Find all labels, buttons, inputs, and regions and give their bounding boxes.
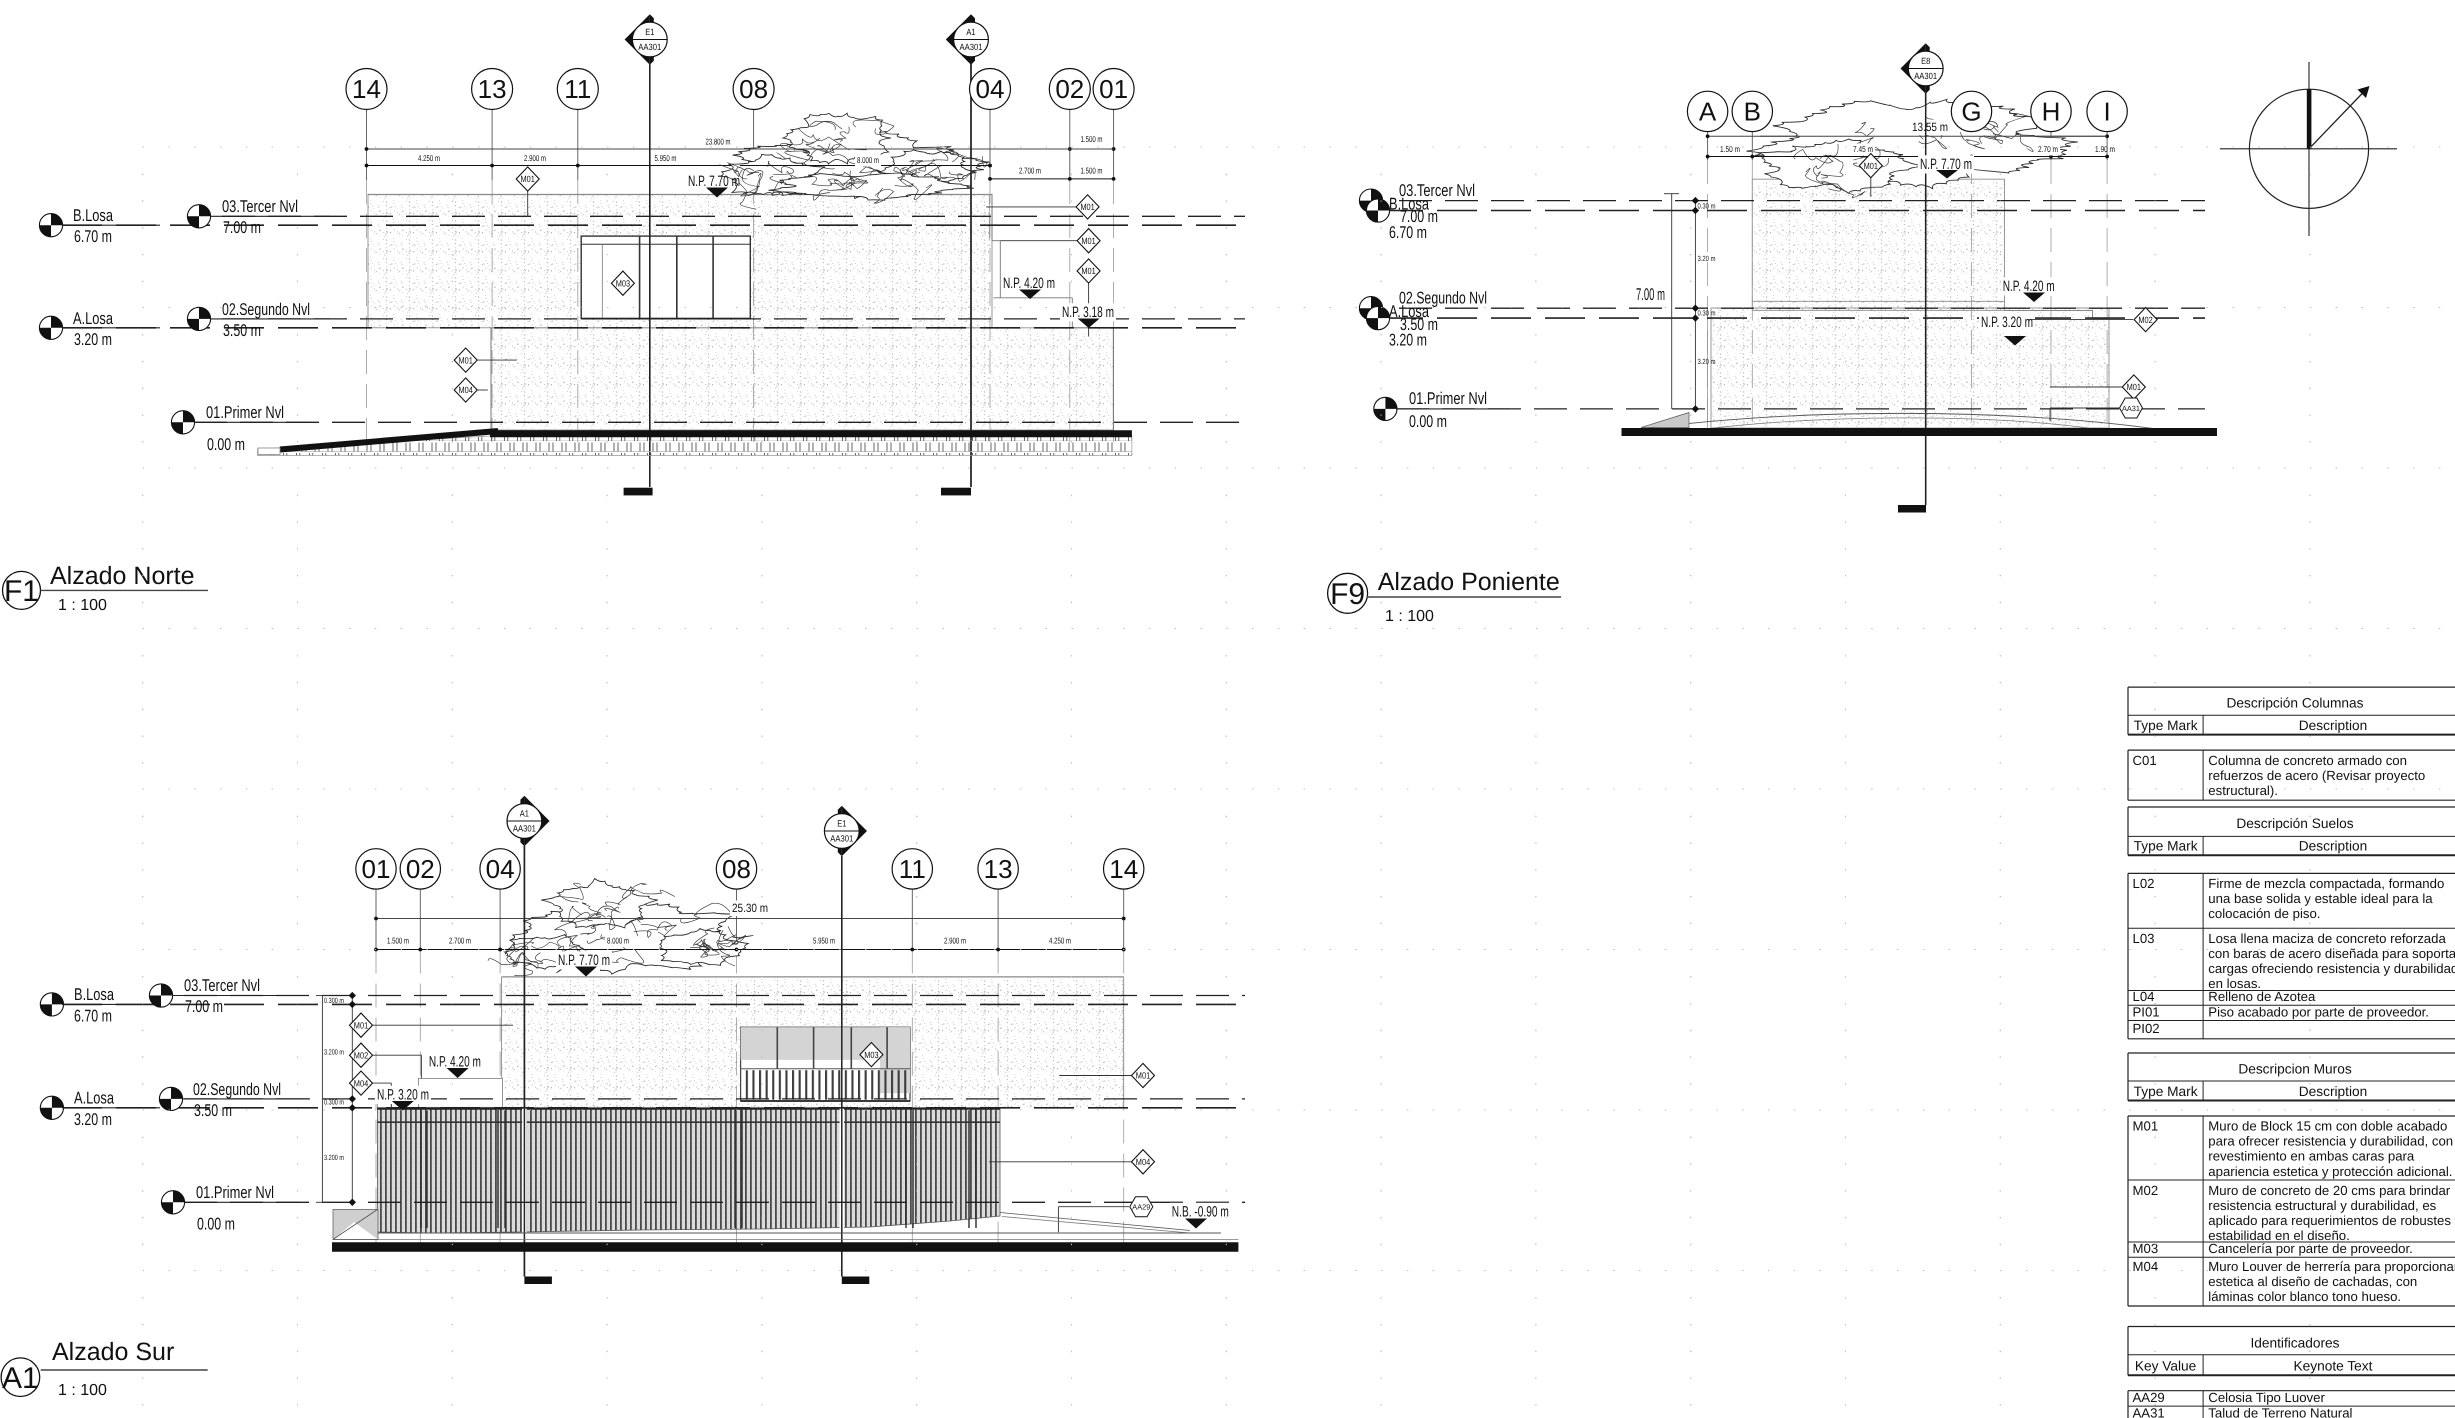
svg-text:M04: M04 xyxy=(2133,1259,2159,1274)
svg-text:1.90 m: 1.90 m xyxy=(2095,144,2115,154)
svg-text:2.70 m: 2.70 m xyxy=(2038,144,2058,154)
svg-text:M01: M01 xyxy=(1081,266,1095,276)
svg-text:02: 02 xyxy=(406,854,435,884)
svg-text:3.20 m: 3.20 m xyxy=(1698,357,1716,366)
svg-text:N.P. 4.20 m: N.P. 4.20 m xyxy=(429,1054,481,1071)
svg-text:0.300 m: 0.300 m xyxy=(324,1098,344,1107)
svg-text:7.00 m: 7.00 m xyxy=(185,997,223,1016)
svg-text:AA29: AA29 xyxy=(1132,1203,1150,1212)
svg-text:estructural).: estructural). xyxy=(2208,783,2278,798)
svg-text:colocación de piso.: colocación de piso. xyxy=(2208,906,2320,921)
svg-text:Type Mark: Type Mark xyxy=(2134,839,2198,854)
svg-text:Alzado Poniente: Alzado Poniente xyxy=(1378,568,1560,596)
svg-text:01.Primer Nvl: 01.Primer Nvl xyxy=(196,1183,274,1202)
svg-text:N.B. -0.90 m: N.B. -0.90 m xyxy=(1172,1204,1229,1221)
svg-text:Firme de mezcla compactada, fo: Firme de mezcla compactada, formando xyxy=(2208,876,2444,891)
svg-text:Description: Description xyxy=(2299,839,2367,854)
svg-text:Losa llena maciza de concreto: Losa llena maciza de concreto reforzada xyxy=(2208,931,2446,946)
svg-text:AA301: AA301 xyxy=(513,824,536,834)
svg-text:03.Tercer Nvl: 03.Tercer Nvl xyxy=(222,197,298,216)
svg-text:M01: M01 xyxy=(1080,202,1094,212)
svg-text:A1: A1 xyxy=(520,809,529,819)
svg-text:N.P. 3.18 m: N.P. 3.18 m xyxy=(1062,304,1114,321)
svg-text:14: 14 xyxy=(352,74,381,104)
svg-text:N.P. 4.20 m: N.P. 4.20 m xyxy=(2003,278,2055,295)
svg-text:una base solida y estable idea: una base solida y estable ideal para la xyxy=(2208,891,2433,906)
svg-text:láminas color blanco tono hues: láminas color blanco tono hueso. xyxy=(2208,1289,2401,1304)
svg-text:3.200 m: 3.200 m xyxy=(324,1048,344,1057)
svg-text:02.Segundo Nvl: 02.Segundo Nvl xyxy=(193,1080,281,1099)
svg-text:13: 13 xyxy=(478,74,507,104)
svg-text:0.00 m: 0.00 m xyxy=(1409,412,1447,431)
svg-text:H: H xyxy=(2042,96,2061,126)
svg-text:M03: M03 xyxy=(2133,1241,2159,1256)
svg-text:01: 01 xyxy=(1099,74,1128,104)
svg-text:Key Value: Key Value xyxy=(2135,1359,2196,1374)
svg-text:03.Tercer Nvl: 03.Tercer Nvl xyxy=(184,976,260,995)
svg-text:02: 02 xyxy=(1055,74,1084,104)
svg-text:11: 11 xyxy=(564,74,591,104)
svg-text:G: G xyxy=(1961,96,1981,126)
svg-text:7.00 m: 7.00 m xyxy=(223,218,261,237)
svg-text:08: 08 xyxy=(722,854,751,884)
svg-text:N.P. 3.20 m: N.P. 3.20 m xyxy=(1981,314,2033,331)
svg-text:Columna de concreto armado con: Columna de concreto armado con xyxy=(2208,753,2407,768)
svg-text:3.50 m: 3.50 m xyxy=(194,1101,232,1120)
svg-text:AA301: AA301 xyxy=(1914,71,1937,81)
svg-text:04: 04 xyxy=(486,854,515,884)
svg-text:M01: M01 xyxy=(1136,1071,1150,1081)
svg-text:AA301: AA301 xyxy=(960,42,983,52)
svg-text:E1: E1 xyxy=(645,27,654,37)
svg-text:Muro de Block 15 cm con doble: Muro de Block 15 cm con doble acabado xyxy=(2208,1119,2447,1134)
svg-text:M01: M01 xyxy=(459,355,473,365)
svg-text:3.20 m: 3.20 m xyxy=(1389,331,1427,350)
svg-text:Celosia Tipo Luover: Celosia Tipo Luover xyxy=(2208,1390,2325,1405)
svg-text:08: 08 xyxy=(739,74,768,104)
svg-text:11: 11 xyxy=(899,854,926,884)
svg-text:A.Losa: A.Losa xyxy=(74,1089,114,1108)
svg-text:Descripción Suelos: Descripción Suelos xyxy=(2236,816,2353,831)
svg-text:01: 01 xyxy=(362,854,391,884)
svg-text:M03: M03 xyxy=(616,278,630,288)
svg-text:7.00 m: 7.00 m xyxy=(1636,285,1665,304)
svg-text:AA29: AA29 xyxy=(2133,1390,2165,1405)
svg-text:8.000 m: 8.000 m xyxy=(607,936,629,946)
svg-text:0.30 m: 0.30 m xyxy=(1698,202,1716,211)
svg-text:B.Losa: B.Losa xyxy=(73,206,113,225)
svg-text:5.950 m: 5.950 m xyxy=(813,936,835,946)
svg-text:Description: Description xyxy=(2299,718,2367,733)
svg-text:A: A xyxy=(1699,96,1717,126)
svg-text:apariencia estetica y protecci: apariencia estetica y protección adicion… xyxy=(2208,1164,2452,1179)
svg-text:M02: M02 xyxy=(354,1050,368,1060)
svg-text:2.700 m: 2.700 m xyxy=(449,936,471,946)
svg-text:01.Primer Nvl: 01.Primer Nvl xyxy=(206,403,284,422)
svg-text:Piso acabado por parte de prov: Piso acabado por parte de proveedor. xyxy=(2208,1005,2429,1020)
svg-text:Type Mark: Type Mark xyxy=(2134,1084,2198,1099)
svg-text:con baras de acero diseñada pa: con baras de acero diseñada para soporta… xyxy=(2208,946,2455,961)
svg-text:Muro de concreto de 20 cms par: Muro de concreto de 20 cms para brindar xyxy=(2208,1183,2451,1198)
svg-text:N.P. 4.20 m: N.P. 4.20 m xyxy=(1003,275,1055,292)
svg-text:0.00 m: 0.00 m xyxy=(207,435,245,454)
svg-text:M01: M01 xyxy=(521,174,535,184)
svg-text:Alzado Sur: Alzado Sur xyxy=(52,1338,174,1366)
svg-text:Talud de Terreno Natural: Talud de Terreno Natural xyxy=(2208,1406,2352,1418)
svg-text:M01: M01 xyxy=(2127,382,2141,392)
svg-text:F9: F9 xyxy=(1330,578,1365,611)
svg-text:Cancelería por parte de provee: Cancelería por parte de proveedor. xyxy=(2208,1241,2413,1256)
svg-text:2.900 m: 2.900 m xyxy=(524,153,546,163)
svg-text:7.45 m: 7.45 m xyxy=(1853,144,1873,154)
svg-text:0.30 m: 0.30 m xyxy=(1698,309,1716,318)
svg-text:6.70 m: 6.70 m xyxy=(1389,223,1427,242)
svg-text:3.20 m: 3.20 m xyxy=(1698,254,1716,263)
svg-text:B.Losa: B.Losa xyxy=(74,985,114,1004)
svg-text:cargas ofreciendo resistencia: cargas ofreciendo resistencia y durabili… xyxy=(2208,961,2455,976)
svg-text:2.900 m: 2.900 m xyxy=(944,936,966,946)
svg-text:Relleno de Azotea: Relleno de Azotea xyxy=(2208,989,2316,1004)
svg-text:M02: M02 xyxy=(2133,1183,2159,1198)
svg-text:B: B xyxy=(1744,96,1761,126)
svg-text:2.700 m: 2.700 m xyxy=(1019,165,1041,175)
svg-text:A1: A1 xyxy=(966,27,975,37)
svg-text:M01: M01 xyxy=(1081,236,1095,246)
svg-text:Descripción Columnas: Descripción Columnas xyxy=(2227,696,2364,711)
svg-text:resistencia estructural y dura: resistencia estructural y durabilidad, e… xyxy=(2208,1198,2436,1213)
svg-text:AA301: AA301 xyxy=(830,834,853,844)
svg-text:14: 14 xyxy=(1109,854,1138,884)
svg-text:01.Primer Nvl: 01.Primer Nvl xyxy=(1409,389,1487,408)
svg-text:M04: M04 xyxy=(459,385,473,395)
svg-text:M04: M04 xyxy=(1136,1157,1150,1167)
svg-text:M03: M03 xyxy=(864,1050,878,1060)
svg-text:1.500 m: 1.500 m xyxy=(1081,165,1103,175)
svg-text:N.P. 7.70 m: N.P. 7.70 m xyxy=(558,952,610,969)
svg-text:6.70 m: 6.70 m xyxy=(74,1007,112,1026)
svg-text:N.P. 3.20 m: N.P. 3.20 m xyxy=(377,1087,429,1104)
svg-text:3.20 m: 3.20 m xyxy=(74,330,112,349)
svg-text:N.P. 7.70 m: N.P. 7.70 m xyxy=(688,173,740,190)
svg-text:Description: Description xyxy=(2299,1084,2367,1099)
svg-text:AA301: AA301 xyxy=(638,42,661,52)
svg-text:I: I xyxy=(2103,96,2110,126)
svg-text:0.00 m: 0.00 m xyxy=(197,1215,235,1234)
svg-text:13.55 m: 13.55 m xyxy=(1912,120,1948,134)
svg-text:E8: E8 xyxy=(1921,56,1930,66)
svg-text:PI02: PI02 xyxy=(2133,1021,2160,1036)
svg-text:A.Losa: A.Losa xyxy=(73,309,113,328)
svg-text:A1: A1 xyxy=(2,1362,39,1395)
svg-text:4.250 m: 4.250 m xyxy=(418,153,440,163)
svg-text:M01: M01 xyxy=(354,1020,368,1030)
svg-text:Alzado Norte: Alzado Norte xyxy=(50,562,195,590)
svg-text:1.500 m: 1.500 m xyxy=(387,936,409,946)
svg-text:E1: E1 xyxy=(837,819,846,829)
svg-text:AA31: AA31 xyxy=(2122,404,2140,413)
svg-text:aplicado para requerimientos d: aplicado para requerimientos de robustes… xyxy=(2208,1213,2455,1228)
svg-text:L03: L03 xyxy=(2133,931,2155,946)
svg-text:Type Mark: Type Mark xyxy=(2134,718,2198,733)
svg-text:refuerzos de acero (Revisar pr: refuerzos de acero (Revisar proyecto xyxy=(2208,768,2425,783)
svg-text:Muro Louver de herrería para p: Muro Louver de herrería para proporciona… xyxy=(2208,1259,2455,1274)
svg-text:Descripcion Muros: Descripcion Muros xyxy=(2238,1062,2351,1077)
svg-text:1 : 100: 1 : 100 xyxy=(58,597,107,614)
svg-text:F1: F1 xyxy=(4,575,39,608)
svg-text:23.800 m: 23.800 m xyxy=(706,137,731,147)
svg-text:M04: M04 xyxy=(354,1078,368,1088)
svg-text:1 : 100: 1 : 100 xyxy=(1385,608,1434,625)
svg-text:L02: L02 xyxy=(2133,876,2155,891)
svg-text:6.70 m: 6.70 m xyxy=(74,227,112,246)
svg-text:0.300 m: 0.300 m xyxy=(324,996,344,1005)
svg-text:M02: M02 xyxy=(2138,315,2152,325)
svg-text:13: 13 xyxy=(984,854,1013,884)
svg-text:para ofrecer resistencia y dur: para ofrecer resistencia y durabilidad, … xyxy=(2208,1134,2453,1149)
svg-text:M01: M01 xyxy=(1864,161,1878,171)
svg-text:M01: M01 xyxy=(2133,1119,2159,1134)
svg-text:Identificadores: Identificadores xyxy=(2250,1336,2339,1351)
svg-text:5.950 m: 5.950 m xyxy=(655,153,677,163)
svg-text:revestimiento en ambas caras p: revestimiento en ambas caras para xyxy=(2208,1149,2415,1164)
svg-text:PI01: PI01 xyxy=(2133,1005,2160,1020)
svg-text:04: 04 xyxy=(976,74,1005,104)
svg-text:1 : 100: 1 : 100 xyxy=(58,1382,107,1399)
svg-text:3.50 m: 3.50 m xyxy=(223,321,261,340)
svg-text:1.50 m: 1.50 m xyxy=(1720,144,1740,154)
svg-text:3.20 m: 3.20 m xyxy=(74,1110,112,1129)
svg-text:AA31: AA31 xyxy=(2133,1406,2165,1418)
svg-text:25.30 m: 25.30 m xyxy=(732,901,768,915)
svg-text:1.500 m: 1.500 m xyxy=(1081,134,1103,144)
svg-text:L04: L04 xyxy=(2133,989,2155,1004)
svg-text:estetica al diseño de cachadas: estetica al diseño de cachadas, con xyxy=(2208,1274,2417,1289)
svg-text:8.000 m: 8.000 m xyxy=(857,155,879,165)
svg-text:4.250 m: 4.250 m xyxy=(1049,936,1071,946)
svg-text:3.200 m: 3.200 m xyxy=(324,1153,344,1162)
svg-text:02.Segundo Nvl: 02.Segundo Nvl xyxy=(222,300,310,319)
svg-text:C01: C01 xyxy=(2133,753,2157,768)
svg-text:Keynote Text: Keynote Text xyxy=(2294,1359,2373,1374)
